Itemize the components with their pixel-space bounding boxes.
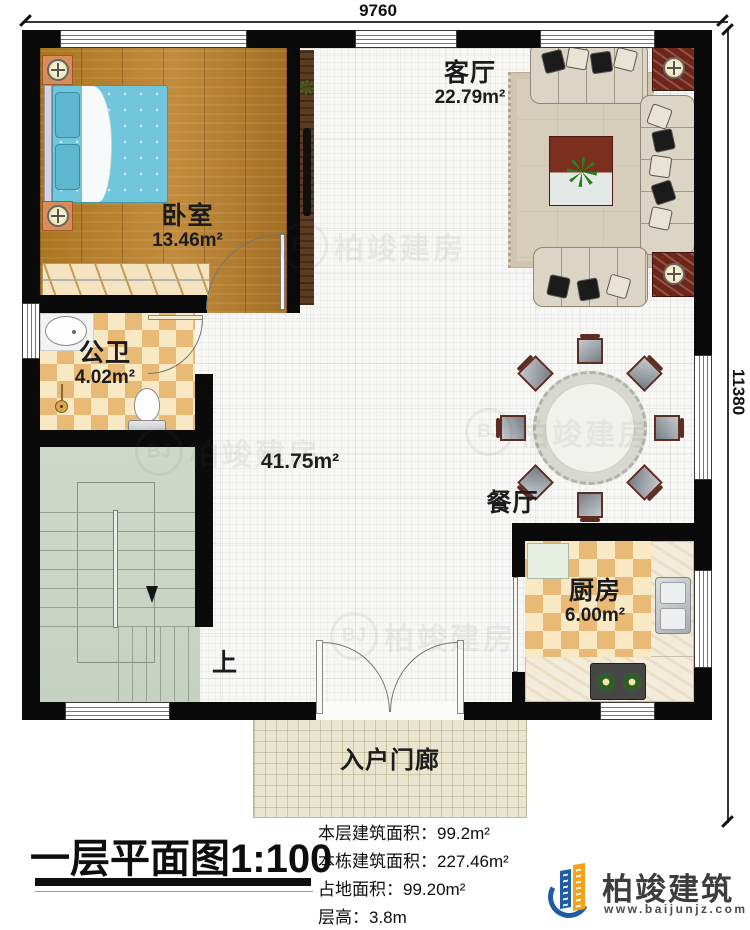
window-living-top-2 — [540, 30, 655, 48]
nightstand — [42, 201, 73, 231]
dining-chair — [577, 338, 603, 364]
hall-area-label: 41.75m² — [245, 450, 355, 473]
wall-kitchen-left-lower — [512, 672, 525, 702]
wall-bath-bottom — [22, 430, 213, 447]
toilet-bowl — [134, 388, 160, 422]
table-lamp-icon — [47, 59, 69, 81]
sofa-pillow — [546, 274, 571, 299]
kitchen-sink — [655, 577, 691, 634]
window-living-top-1 — [355, 30, 457, 48]
dining-name: 餐厅 — [470, 490, 555, 518]
sofa-pillow — [649, 155, 673, 179]
title-text: 一层平面图 — [30, 837, 230, 881]
sofa-pillow — [590, 51, 614, 75]
stove-burner — [623, 673, 641, 691]
sofa-right — [640, 95, 695, 255]
coffee-table — [549, 136, 613, 206]
bathroom-name: 公卫 — [60, 340, 150, 368]
wall-stairs-right — [195, 447, 213, 627]
bedroom-label: 卧室 13.46m² — [140, 203, 235, 251]
window-bath-left — [22, 303, 40, 359]
sofa-pillow — [541, 49, 566, 74]
window-kitchen-bottom — [600, 702, 655, 720]
bed-headboard — [44, 85, 52, 203]
porch-label: 入户门廊 — [310, 748, 470, 774]
sofa-top — [530, 42, 648, 104]
kitchen-label: 厨房 6.00m² — [545, 578, 645, 626]
dining-chair — [500, 415, 526, 441]
sink-basin — [660, 582, 686, 604]
logo-tower-orange — [573, 863, 585, 911]
sofa-pillow — [613, 47, 638, 72]
window-dining-right — [694, 355, 712, 480]
stairs-up-text: 上 — [205, 650, 245, 678]
logo-website: www.baijunjz.com — [604, 902, 748, 916]
title-rule-thick — [35, 878, 311, 886]
title-rule-thin — [35, 891, 313, 892]
kitchen-fridge — [527, 543, 569, 579]
table-lamp-icon — [47, 205, 69, 227]
stove-burner — [597, 673, 615, 691]
plant-icon — [567, 157, 597, 187]
dining-table-top — [545, 383, 635, 473]
table-lamp-icon — [663, 57, 685, 79]
living-label: 客厅 22.79m² — [415, 60, 525, 108]
wall-bedroom-living — [287, 48, 300, 313]
tv-icon — [303, 128, 311, 216]
porch-name: 入户门廊 — [310, 748, 470, 774]
dining-label: 餐厅 — [470, 490, 555, 518]
wall-kitchen-left-upper — [512, 541, 525, 577]
stair-direction-arrow — [146, 586, 158, 603]
small-plant-icon — [299, 80, 314, 95]
window-bedroom-top — [60, 30, 247, 48]
stair-treads-upper — [40, 512, 200, 628]
dimension-right: 11380 — [728, 348, 748, 436]
bathroom-label: 公卫 4.02m² — [60, 340, 150, 388]
wall-kitchen-top — [512, 523, 694, 541]
stat-floor-area: 本层建筑面积：99.2m² — [318, 820, 509, 848]
bed-pillow — [55, 92, 80, 138]
building-stats: 本层建筑面积：99.2m² 本栋建筑面积：227.46m² 占地面积：99.20… — [318, 820, 509, 930]
entrance-jamb — [457, 640, 464, 714]
sofa-pillow — [646, 103, 673, 130]
table-lamp-icon — [663, 263, 685, 285]
bedroom-door-leaf — [280, 234, 285, 310]
dimension-top: 9760 — [333, 1, 423, 21]
title-scale: 1:100 — [230, 837, 332, 881]
nightstand — [42, 55, 73, 85]
end-table — [652, 252, 696, 297]
kitchen-area: 6.00m² — [545, 606, 645, 627]
stair-rail — [113, 510, 118, 628]
kitchen-stove — [590, 663, 646, 700]
floor-plan: 卧室 13.46m² 客厅 22.79m² 公卫 4.02m² 41.75m² … — [0, 0, 750, 930]
stat-footprint-area: 占地面积：99.20m² — [318, 876, 509, 904]
sofa-bottom — [533, 247, 648, 307]
logo-tower-blue — [560, 869, 571, 909]
stat-total-area: 本栋建筑面积：227.46m² — [318, 848, 509, 876]
bed-pillow — [55, 144, 80, 190]
sofa-pillow — [650, 179, 676, 205]
stairs-up-label: 上 — [205, 650, 245, 678]
dining-chair — [577, 492, 603, 518]
kitchen-door-leaf — [513, 577, 518, 672]
living-name: 客厅 — [415, 60, 525, 88]
bathroom-area: 4.02m² — [60, 368, 150, 389]
kitchen-name: 厨房 — [545, 578, 645, 606]
window-kitchen-right — [694, 570, 712, 668]
hall-area: 41.75m² — [245, 450, 355, 473]
stat-floor-height: 层高：3.8m — [318, 904, 509, 930]
sofa-pillow — [565, 46, 589, 70]
bedroom-area: 13.46m² — [140, 231, 235, 252]
entrance-jamb — [316, 640, 323, 714]
sofa-pillow — [606, 274, 632, 300]
window-stairs-bottom — [65, 702, 170, 720]
living-area: 22.79m² — [415, 88, 525, 109]
stair-treads-lower — [118, 627, 200, 701]
drawing-title: 一层平面图1:100 — [30, 826, 332, 884]
wardrobe — [42, 263, 210, 297]
bedroom-name: 卧室 — [140, 203, 235, 231]
bathroom-door-leaf — [148, 315, 203, 320]
sofa-pillow — [576, 277, 600, 301]
company-logo: 柏竣建筑 www.baijunjz.com — [548, 858, 748, 924]
end-table — [652, 46, 696, 91]
wall-left — [22, 30, 40, 720]
sofa-pillow — [648, 206, 673, 231]
sofa-pillow — [651, 128, 676, 153]
sink-basin — [660, 608, 686, 630]
wall-bedroom-south — [40, 295, 207, 313]
dining-chair — [654, 415, 680, 441]
logo-mark-icon — [548, 860, 594, 920]
dimension-top-line — [25, 21, 728, 23]
floor-drain-icon — [55, 400, 68, 413]
sink-drain — [72, 330, 76, 334]
